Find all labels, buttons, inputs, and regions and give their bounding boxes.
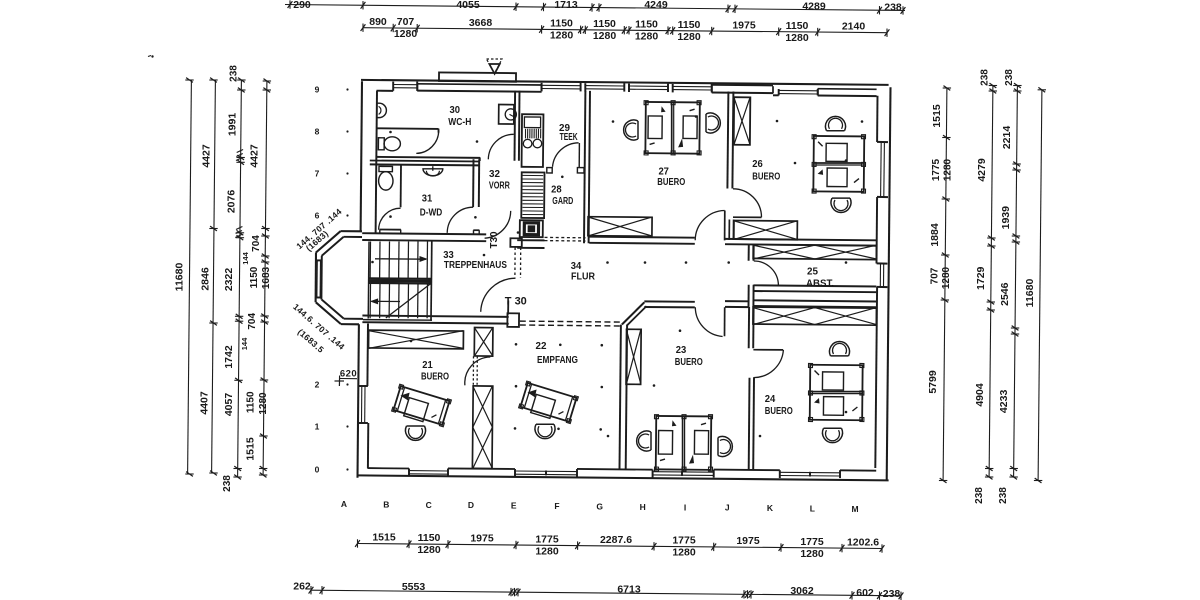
svg-text:1742: 1742: [223, 345, 235, 369]
svg-text:238: 238: [1004, 69, 1015, 86]
svg-text:WC-H: WC-H: [448, 117, 471, 128]
svg-text:1775: 1775: [931, 158, 942, 181]
svg-text:1280: 1280: [593, 30, 617, 42]
svg-text:1515: 1515: [245, 437, 257, 461]
svg-text:6713: 6713: [617, 583, 641, 595]
svg-text:238: 238: [883, 588, 901, 600]
svg-text:I: I: [684, 502, 686, 512]
svg-text:1150: 1150: [550, 18, 573, 30]
svg-text:1280: 1280: [535, 545, 559, 557]
svg-text:704: 704: [247, 313, 258, 330]
svg-text:4249: 4249: [644, 0, 668, 11]
svg-text:VORR: VORR: [489, 180, 511, 191]
svg-text:TEEK: TEEK: [560, 132, 579, 143]
svg-text:1884: 1884: [929, 223, 941, 247]
svg-text:2214: 2214: [1001, 126, 1013, 150]
svg-text:1775: 1775: [672, 535, 696, 547]
svg-text:1150: 1150: [678, 19, 701, 31]
svg-text:26: 26: [752, 159, 763, 170]
svg-text:1775: 1775: [800, 536, 824, 548]
svg-text:25: 25: [807, 267, 818, 278]
svg-text:21: 21: [422, 360, 433, 371]
svg-text:L: L: [810, 503, 815, 513]
svg-text:704: 704: [251, 235, 262, 252]
svg-text:290: 290: [293, 0, 311, 11]
svg-text:24: 24: [765, 394, 776, 405]
svg-text:238: 238: [222, 475, 233, 492]
svg-text:1150: 1150: [246, 391, 257, 413]
svg-text:C: C: [426, 500, 432, 510]
svg-text:238: 238: [980, 69, 991, 86]
svg-text:5799: 5799: [927, 370, 939, 394]
svg-text:1150: 1150: [593, 18, 616, 30]
svg-text:1280: 1280: [258, 392, 269, 415]
svg-text:A: A: [341, 499, 347, 509]
svg-text:1150: 1150: [786, 20, 809, 32]
svg-text:2: 2: [315, 380, 320, 390]
svg-text:4279: 4279: [976, 158, 988, 182]
svg-text:1280: 1280: [394, 28, 418, 40]
svg-text:BUERO: BUERO: [675, 357, 703, 368]
svg-text:30: 30: [450, 105, 461, 116]
svg-text:1991: 1991: [227, 113, 239, 137]
svg-text:238: 238: [229, 65, 240, 82]
svg-text:5553: 5553: [402, 581, 426, 593]
svg-text:4427: 4427: [249, 144, 261, 168]
svg-text:1150: 1150: [418, 532, 441, 544]
svg-text:1280: 1280: [635, 30, 659, 42]
svg-text:1280: 1280: [943, 158, 954, 181]
svg-text:1713: 1713: [554, 0, 578, 11]
svg-text:BUERO: BUERO: [765, 406, 793, 417]
svg-text:K: K: [767, 503, 774, 513]
svg-text:2846: 2846: [200, 267, 212, 291]
svg-text:G: G: [596, 501, 603, 511]
svg-text:1280: 1280: [941, 266, 952, 289]
svg-text:1975: 1975: [470, 533, 494, 545]
svg-text:4055: 4055: [456, 0, 480, 11]
svg-text:2322: 2322: [223, 268, 235, 292]
svg-text:1280: 1280: [800, 548, 824, 560]
svg-text:1515: 1515: [931, 104, 943, 128]
svg-text:11680: 11680: [174, 263, 186, 292]
svg-text:1: 1: [315, 422, 320, 432]
svg-text:1280: 1280: [417, 544, 441, 556]
svg-text:2140: 2140: [842, 20, 866, 32]
svg-text:9: 9: [315, 85, 320, 95]
svg-text:1150: 1150: [249, 266, 260, 288]
svg-text:707: 707: [397, 16, 415, 28]
svg-text:23: 23: [676, 345, 687, 356]
svg-text:6: 6: [315, 211, 320, 221]
svg-text:620: 620: [340, 369, 357, 380]
svg-text:1280: 1280: [550, 30, 574, 42]
svg-text:4904: 4904: [974, 383, 986, 407]
svg-text:1280: 1280: [672, 547, 696, 559]
svg-text:32: 32: [489, 169, 500, 180]
svg-text:1729: 1729: [975, 266, 987, 290]
svg-text:4407: 4407: [199, 391, 211, 415]
svg-text:4233: 4233: [998, 390, 1010, 414]
svg-text:ABST.: ABST.: [806, 278, 834, 289]
svg-text:1515: 1515: [372, 532, 396, 544]
svg-text:T30: T30: [489, 231, 500, 248]
svg-text:4427: 4427: [201, 144, 213, 168]
svg-text:238: 238: [998, 487, 1009, 504]
svg-text:1280: 1280: [785, 32, 809, 44]
svg-text:B: B: [383, 499, 389, 509]
svg-text:1975: 1975: [736, 535, 760, 547]
svg-text:2546: 2546: [999, 282, 1011, 306]
svg-text:M: M: [851, 504, 858, 514]
svg-text:FLUR: FLUR: [571, 272, 596, 283]
svg-text:707: 707: [930, 267, 941, 284]
svg-text:7: 7: [315, 169, 320, 179]
svg-text:T 30: T 30: [505, 296, 527, 308]
svg-text:1975: 1975: [732, 19, 756, 31]
svg-text:2076: 2076: [226, 190, 238, 214]
svg-text:1280: 1280: [677, 31, 701, 43]
svg-text:2287.6: 2287.6: [600, 534, 632, 546]
svg-text:3668: 3668: [469, 17, 493, 29]
svg-text:TREPPENHAUS: TREPPENHAUS: [444, 260, 507, 271]
svg-text:11680: 11680: [1024, 279, 1036, 308]
svg-text:0: 0: [315, 465, 320, 475]
svg-text:1775: 1775: [535, 533, 559, 545]
svg-text:EMPFANG: EMPFANG: [537, 355, 578, 366]
svg-text:28: 28: [551, 184, 562, 195]
svg-text:262: 262: [293, 580, 311, 592]
svg-text:8: 8: [315, 127, 320, 137]
svg-text:F: F: [554, 501, 559, 511]
svg-text:H: H: [640, 502, 646, 512]
svg-text:22: 22: [536, 341, 547, 352]
svg-text:34: 34: [571, 261, 582, 272]
svg-text:1202.6: 1202.6: [847, 536, 879, 548]
svg-text:1683: 1683: [261, 266, 272, 289]
svg-text:602: 602: [856, 587, 874, 599]
svg-text:J: J: [725, 503, 730, 513]
svg-text:1939: 1939: [1000, 206, 1012, 230]
svg-text:E: E: [511, 501, 517, 511]
svg-text:238: 238: [884, 2, 902, 14]
svg-text:D-WD: D-WD: [420, 207, 443, 218]
svg-text:890: 890: [369, 16, 387, 28]
svg-text:3062: 3062: [790, 585, 814, 597]
svg-text:238: 238: [974, 487, 985, 504]
svg-text:4289: 4289: [802, 1, 826, 13]
svg-text:144: 144: [241, 251, 250, 264]
svg-text:BUERO: BUERO: [752, 171, 780, 182]
svg-text:D: D: [468, 500, 474, 510]
svg-text:31: 31: [422, 194, 433, 205]
svg-text:GARD: GARD: [552, 196, 573, 207]
svg-text:4057: 4057: [223, 393, 235, 417]
svg-text:BUERO: BUERO: [657, 177, 685, 188]
svg-text:BUERO: BUERO: [421, 371, 449, 382]
svg-text:1150: 1150: [635, 18, 658, 30]
svg-text:144: 144: [240, 337, 249, 350]
